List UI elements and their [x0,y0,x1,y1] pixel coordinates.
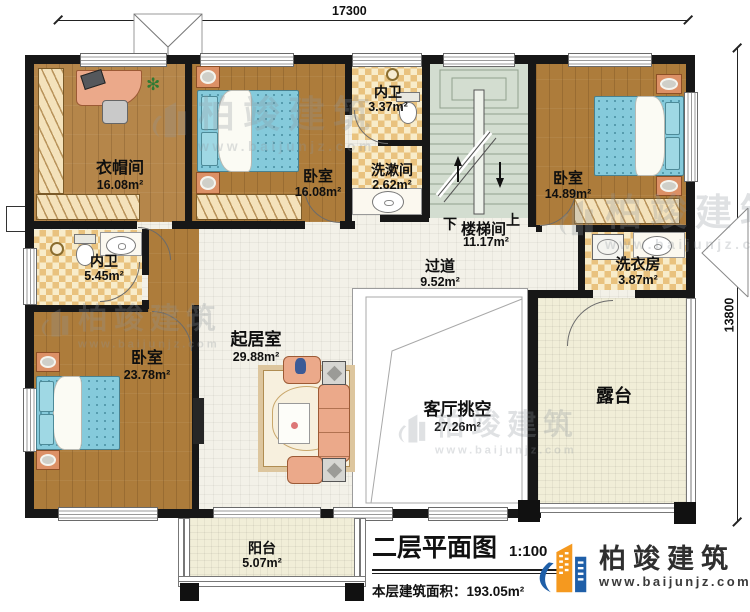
room-name: 卧室 [303,168,333,185]
window [443,53,515,67]
terrace-railing [538,503,688,513]
room-area: 3.37m² [352,100,424,114]
window [23,388,37,452]
void-slope-lines [352,288,528,510]
nightstand [656,176,682,196]
terrace-railing [686,298,696,505]
room-area: 14.89m² [524,187,612,201]
room-name: 洗漱间 [371,162,413,178]
window [23,248,37,305]
room-name: 过道 [425,258,455,275]
window [80,53,167,67]
sink [372,191,404,213]
wall [172,221,305,229]
room-label-laundry: 洗衣房 3.87m² [598,256,678,288]
nightstand [36,450,60,470]
pillow [665,102,680,135]
room-label-bedroom-right: 卧室 14.89m² [524,170,612,202]
wall [345,55,352,115]
room-name: 起居室 [231,330,282,349]
top-dimension-label: 17300 [332,4,367,18]
side-table [322,458,346,482]
balcony-railing [178,576,366,587]
wall [345,215,352,222]
bed [36,376,120,450]
tv [193,398,204,444]
blanket [53,376,81,450]
room-name: 洗衣房 [615,256,660,273]
balcony-railing [354,518,366,578]
room-name: 阳台 [248,540,276,556]
pillow [665,137,680,170]
wall [185,55,192,227]
wall [528,290,538,510]
bed [197,90,299,172]
pillow [39,414,53,445]
sink [642,236,672,256]
toilet-tank [74,234,96,244]
room-name: 衣帽间 [96,160,144,177]
wall [422,55,430,218]
room-label-void: 客厅挑空 27.26m² [400,400,515,434]
nightstand [196,172,220,194]
room-label-corridor: 过道 9.52m² [406,258,474,290]
floor-area-value: 193.05m² [467,584,525,599]
room-name: 露台 [596,386,632,406]
wall [635,290,687,298]
room-area: 27.26m² [400,420,515,434]
wall [340,221,355,229]
closet [574,198,680,224]
pillow [39,381,53,412]
right-dimension-label: 13800 [722,298,736,333]
closet [38,68,64,194]
shower-fixture [50,242,64,256]
floor-area-label: 本层建筑面积： [372,584,467,599]
room-area: 16.08m² [70,178,170,192]
roof-gable-right [694,205,750,300]
room-label-bedroom-bottom: 卧室 23.78m² [102,350,192,383]
pillow [201,132,218,166]
closet [36,194,140,220]
room-area: 29.88m² [212,350,300,364]
room-name: 卧室 [553,170,583,187]
window [568,53,652,67]
bed [594,96,684,176]
room-label-balcony: 阳台 5.07m² [222,540,302,570]
company-logo-icon [534,538,590,596]
room-area: 9.52m² [406,275,474,289]
room-area: 5.45m² [72,269,136,283]
wall [536,225,542,232]
window [352,53,422,67]
room-name: 客厅挑空 [424,400,492,419]
room-label-cloakroom: 衣帽间 16.08m² [70,160,170,193]
room-area-stairwell: 11.17m² [463,235,509,249]
room-label-bath-left: 内卫 5.45m² [72,253,136,283]
sofa [318,384,350,462]
plan-title: 二层平面图 [372,528,497,564]
room-area: 23.78m² [102,368,192,382]
nightstand [196,66,220,88]
side-table [322,361,346,385]
stair-up-label: 上 [506,210,520,230]
room-area: 3.87m² [598,273,678,287]
column-post [674,502,696,524]
stair-down-label: 下 [443,214,457,234]
room-label-terrace: 露台 [578,386,650,407]
window [200,53,294,67]
balcony-railing [178,518,190,578]
wall [578,232,585,290]
wall [25,305,148,312]
room-label-washroom: 洗漱间 2.62m² [350,162,434,192]
column-post [345,583,364,601]
stairs [430,62,528,218]
room-name: 内卫 [374,84,402,100]
armchair [287,456,323,484]
company-logo: 柏竣建筑 www.baijunjz.com [534,538,750,596]
room-label-bath-top: 内卫 3.37m² [352,84,424,114]
nightstand [36,352,60,372]
light-fixture [386,68,399,81]
window [58,507,158,521]
wall [25,221,137,229]
company-name: 柏竣建筑 [599,545,750,573]
room-area: 5.07m² [222,556,302,570]
window [428,507,508,521]
plan-title-row: 二层平面图 1:100 [372,528,560,571]
room-area: 2.62m² [350,178,434,192]
chair [102,100,128,124]
room-name: 卧室 [131,350,163,367]
wall [576,225,687,232]
room-label-living: 起居室 29.88m² [212,330,300,364]
coffee-table [278,403,310,444]
company-website: www.baijunjz.com [599,574,750,589]
pillow [201,96,218,130]
wall [538,290,593,298]
column-post [518,500,540,522]
blanket [635,96,665,176]
blanket [218,90,252,172]
floor-plan-page: 17300 13800 [0,0,750,612]
plant: ✻ [146,76,160,93]
nightstand [656,74,682,94]
window [684,92,698,182]
column-post [180,583,199,601]
room-name: 内卫 [90,253,118,269]
